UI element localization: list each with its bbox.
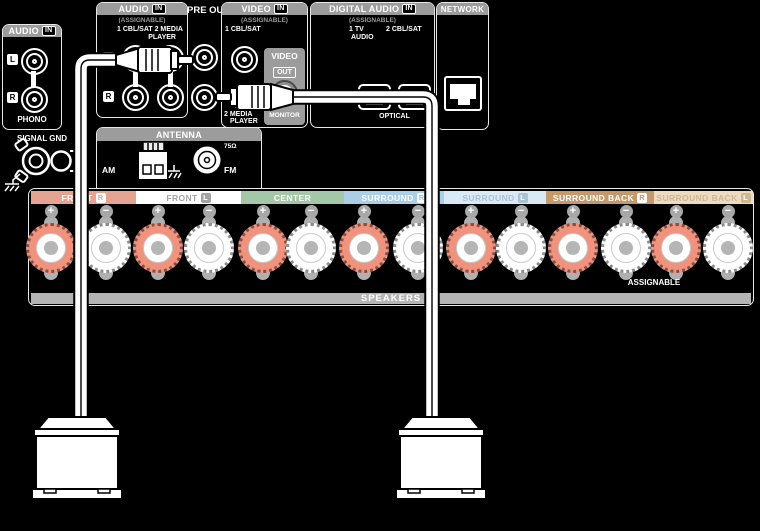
- in-badge: IN: [274, 4, 288, 14]
- rca-jack-cbl-l: [122, 45, 149, 72]
- speaker-binding-post: [339, 223, 389, 273]
- plus-sign-icon: +: [152, 205, 165, 218]
- plus-sign-icon: +: [567, 205, 580, 218]
- rca-jack-phono-l: [21, 48, 48, 75]
- video-jack2-label-line1: 2 MEDIA: [224, 111, 252, 118]
- channel-name: CENTER: [274, 193, 311, 203]
- minus-sign-icon: −: [412, 205, 425, 218]
- minus-sign-icon: −: [305, 205, 318, 218]
- assignable-subtitle: (ASSIGNABLE): [222, 17, 307, 24]
- plus-sign-icon: +: [465, 205, 478, 218]
- optical-jack1-label-line1: 1 TV: [349, 26, 364, 33]
- minus-sign-icon: −: [100, 205, 113, 218]
- network-header: NETWORK: [437, 3, 488, 15]
- monitor-label: MONITOR: [264, 112, 305, 119]
- audio-in-assignable-section: AUDIO IN (ASSIGNABLE) 1 CBL/SAT 2 MEDIA …: [96, 2, 188, 118]
- speaker-binding-post: [393, 223, 443, 273]
- video-in-section: VIDEO IN (ASSIGNABLE) 1 CBL/SAT 2 MEDIA …: [221, 2, 308, 128]
- channel-name: FRONT: [166, 193, 197, 203]
- optical-caption: OPTICAL: [358, 113, 431, 120]
- channel-side-badge: R: [96, 193, 106, 203]
- out-badge-wrap: OUT: [264, 61, 305, 79]
- subwoofer-left: [32, 417, 122, 499]
- speaker-channel-label: SURROUNDR: [344, 191, 444, 204]
- speaker-binding-post: [184, 223, 234, 273]
- optical-jack-tv: [358, 84, 391, 110]
- speaker-channel-label: SURROUND BACKR: [546, 191, 654, 204]
- minus-sign-icon: −: [203, 205, 216, 218]
- fm-impedance-label: 75Ω: [224, 143, 236, 150]
- speaker-channel-label: SURROUND BACKL: [654, 191, 753, 204]
- rca-jack-media-l: [157, 45, 184, 72]
- minus-sign-icon: −: [620, 205, 633, 218]
- speaker-binding-post: [703, 223, 753, 273]
- optical-jack-cblsat: [398, 84, 431, 110]
- out-badge: OUT: [273, 67, 296, 78]
- optical-jack2-label: 2 CBL/SAT: [386, 26, 422, 33]
- rca-jack-video-media: [231, 84, 258, 111]
- plus-sign-icon: +: [257, 205, 270, 218]
- rca-jack-phono-r: [21, 86, 48, 113]
- in-badge: IN: [42, 26, 56, 36]
- audio-jack-labels-line1: 1 CBL/SAT 2 MEDIA: [97, 26, 183, 33]
- speakers-section: FRONTRFRONTLCENTERSURROUNDRSURROUNDLSURR…: [28, 188, 754, 306]
- phono-caption: PHONO: [3, 115, 61, 124]
- rca-jack-media-r: [157, 84, 184, 111]
- speaker-binding-post: [286, 223, 336, 273]
- channel-name: SURROUND: [462, 193, 514, 203]
- ethernet-jack: [444, 76, 482, 111]
- digital-audio-header: DIGITAL AUDIO IN: [311, 3, 434, 15]
- video-out-title: VIDEO: [264, 51, 305, 61]
- antenna-section: ANTENNA AM 75Ω FM: [96, 127, 262, 191]
- speaker-binding-post: [133, 223, 183, 273]
- signal-gnd-label: SIGNAL GND: [17, 134, 67, 143]
- optical-jack1-label-line2: AUDIO: [351, 34, 374, 41]
- rca-jack-preout-2: [191, 84, 218, 111]
- audio-in-title: AUDIO: [118, 4, 149, 14]
- assignable-subtitle: (ASSIGNABLE): [97, 17, 187, 24]
- minus-sign-icon: −: [722, 205, 735, 218]
- channel-side-badge: L: [518, 193, 528, 203]
- rca-jack-video-cblsat: [231, 46, 258, 73]
- speaker-channel-label: SURROUNDL: [444, 191, 546, 204]
- video-jack1-label: 1 CBL/SAT: [225, 26, 261, 33]
- digital-audio-title: DIGITAL AUDIO: [329, 4, 399, 14]
- rca-jack-cbl-r: [122, 84, 149, 111]
- ground-terminal-icon: [5, 138, 79, 191]
- channel-l-badge: L: [7, 54, 18, 65]
- speaker-binding-post: [26, 223, 76, 273]
- channel-name: SURROUND BACK: [553, 193, 634, 203]
- video-in-title: VIDEO: [241, 4, 271, 14]
- antenna-header: ANTENNA: [97, 128, 261, 141]
- speaker-binding-post: [81, 223, 131, 273]
- video-out-subsection: VIDEO OUT MONITOR: [264, 48, 305, 125]
- audio-in-header: AUDIO IN: [97, 3, 187, 15]
- speaker-channel-label: FRONTL: [136, 191, 241, 204]
- audio-in-phono-section: AUDIO IN L R PHONO: [2, 24, 62, 130]
- speaker-channel-label: CENTER: [241, 191, 344, 204]
- in-badge: IN: [152, 4, 166, 14]
- speakers-bottom-bar: SPEAKERS: [31, 293, 751, 304]
- channel-r-badge: R: [7, 92, 18, 103]
- channel-name: FRONT: [61, 193, 92, 203]
- rca-jack-preout-1: [191, 44, 218, 71]
- channel-l-badge: L: [103, 52, 114, 63]
- channel-r-badge: R: [103, 91, 114, 102]
- video-in-header: VIDEO IN: [222, 3, 307, 15]
- speakers-caption: SPEAKERS: [361, 293, 421, 304]
- assignable-subtitle: (ASSIGNABLE): [311, 17, 434, 24]
- plus-sign-icon: +: [670, 205, 683, 218]
- speaker-binding-post: [496, 223, 546, 273]
- audio-in-phono-title: AUDIO: [8, 26, 39, 36]
- rca-jack-monitor: [271, 80, 298, 107]
- assignable-caption: ASSIGNABLE: [624, 278, 684, 287]
- speaker-binding-post: [446, 223, 496, 273]
- audio-in-phono-header: AUDIO IN: [3, 25, 61, 37]
- channel-side-badge: R: [637, 193, 647, 203]
- plus-sign-icon: +: [358, 205, 371, 218]
- speaker-binding-post: [651, 223, 701, 273]
- channel-side-badge: L: [741, 193, 751, 203]
- subwoofer-right: [396, 417, 486, 499]
- video-jack2-label-line2: PLAYER: [230, 118, 258, 125]
- am-label: AM: [102, 165, 115, 175]
- audio-jack-labels-line2: PLAYER: [97, 34, 176, 41]
- channel-name: SURROUND: [361, 193, 413, 203]
- speaker-binding-post: [238, 223, 288, 273]
- receiver-rear-panel-diagram: AUDIO IN L R PHONO AUDIO IN (ASSIGNABLE)…: [0, 0, 760, 531]
- fm-label: FM: [224, 165, 236, 175]
- in-badge: IN: [402, 4, 416, 14]
- speaker-channel-label: FRONTR: [31, 191, 136, 204]
- digital-audio-in-section: DIGITAL AUDIO IN (ASSIGNABLE) 1 TV AUDIO…: [310, 2, 435, 128]
- plus-sign-icon: +: [45, 205, 58, 218]
- channel-side-badge: R: [417, 193, 427, 203]
- speaker-binding-post: [548, 223, 598, 273]
- minus-sign-icon: −: [515, 205, 528, 218]
- channel-name: SURROUND BACK: [656, 193, 737, 203]
- channel-side-badge: L: [201, 193, 211, 203]
- speaker-binding-post: [601, 223, 651, 273]
